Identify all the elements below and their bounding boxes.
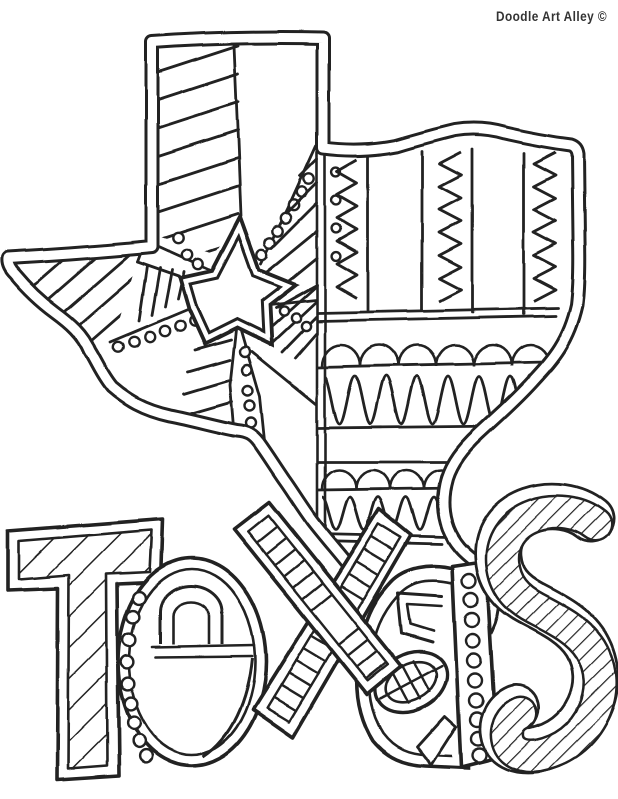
svg-text:Doodle Art Alley ©: Doodle Art Alley © [496,9,607,24]
